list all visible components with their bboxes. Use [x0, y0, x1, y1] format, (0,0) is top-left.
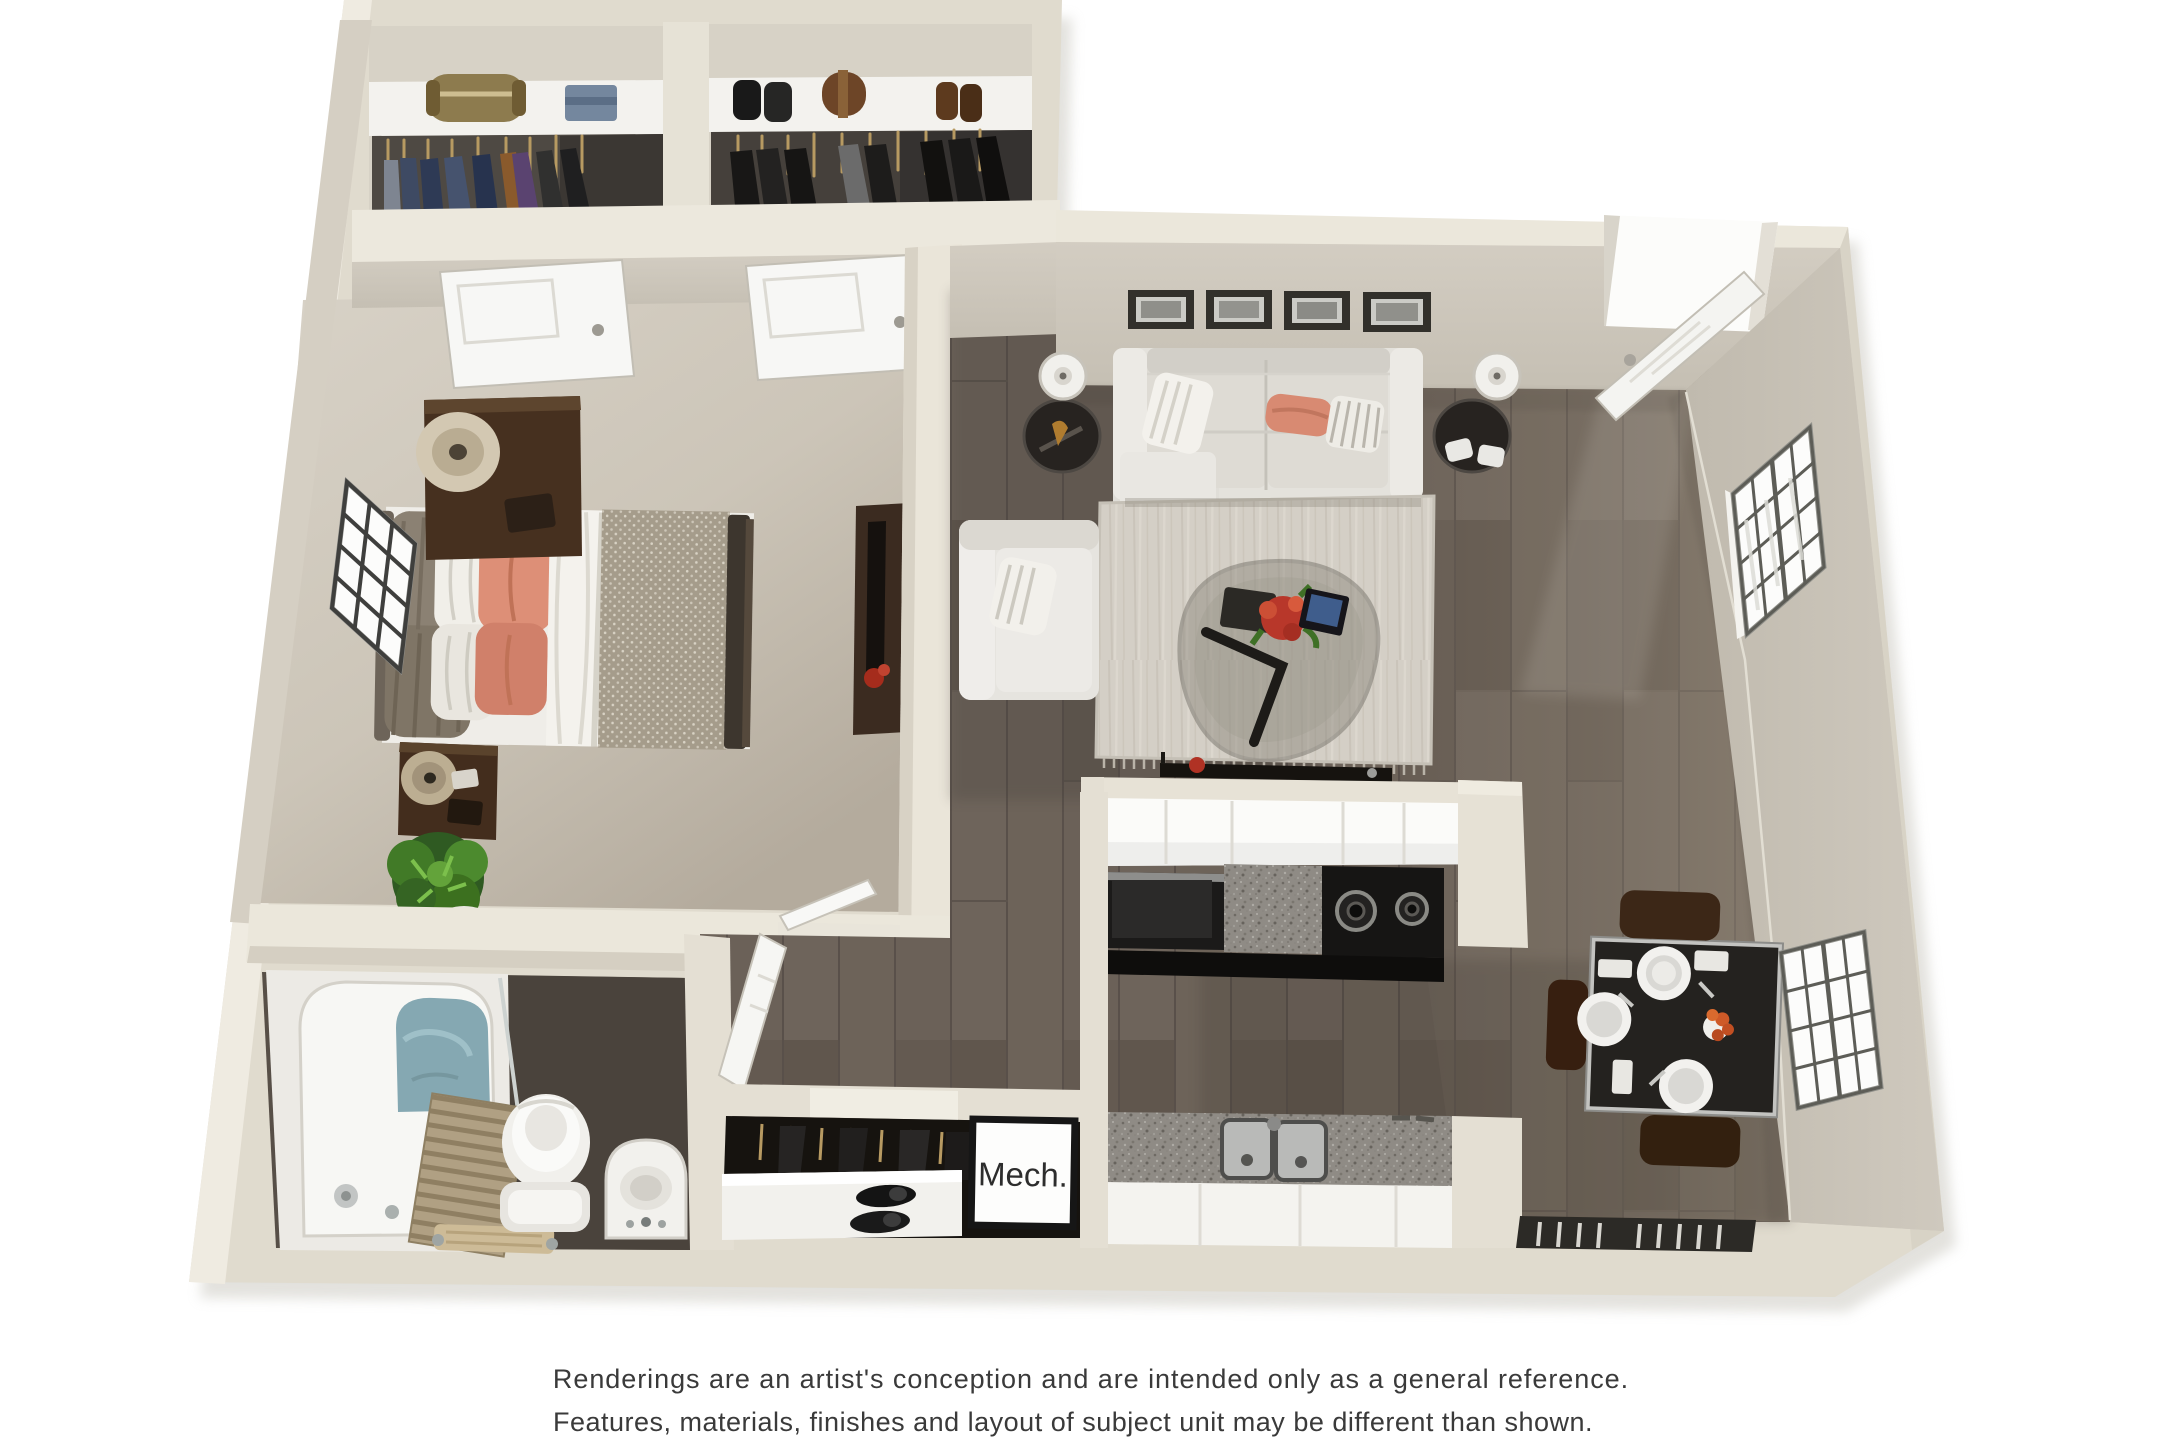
svg-text:Features, materials, finishes: Features, materials, finishes and layout… [553, 1407, 1593, 1437]
svg-text:Renderings are an artist's con: Renderings are an artist's conception an… [553, 1364, 1629, 1394]
svg-text:Mech.: Mech. [978, 1155, 1069, 1194]
